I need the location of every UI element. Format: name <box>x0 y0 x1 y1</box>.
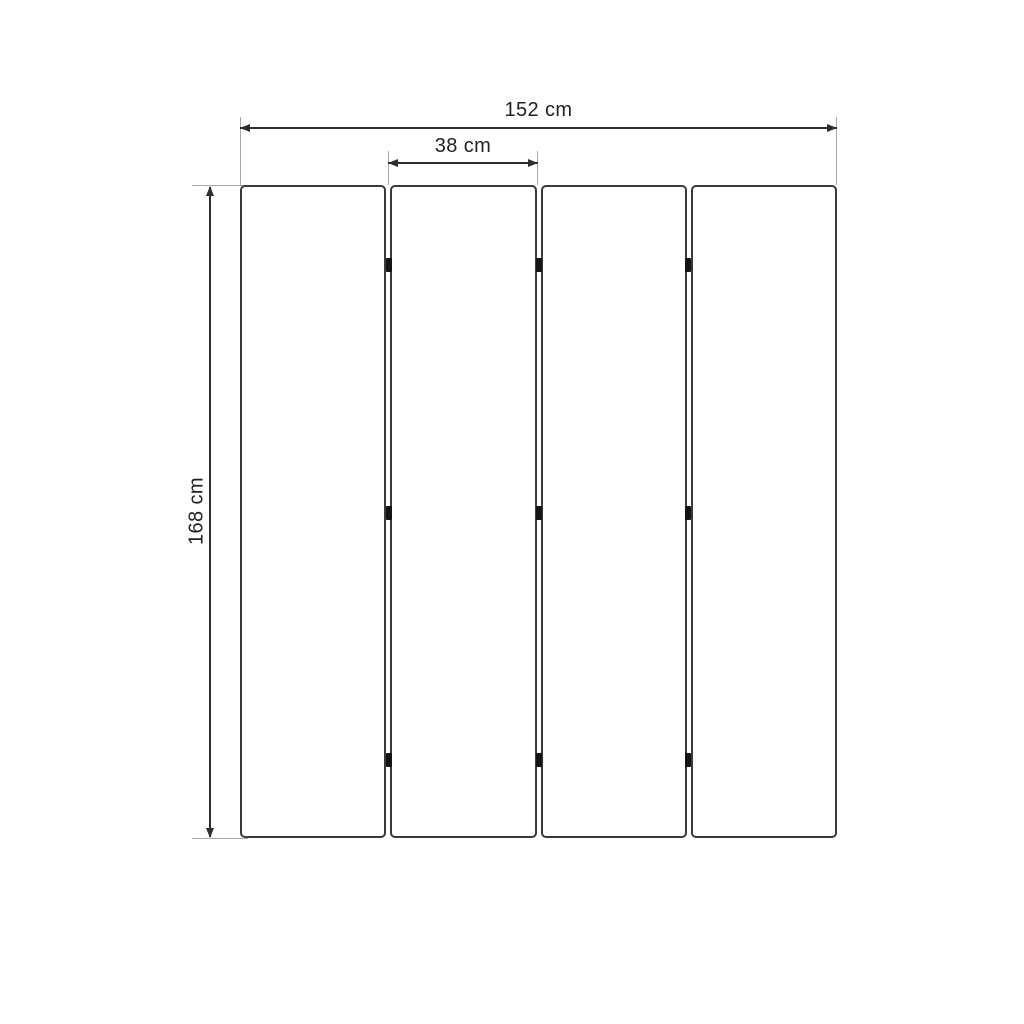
arrowhead-right-icon <box>827 124 837 132</box>
arrowhead-left-icon <box>240 124 250 132</box>
arrowhead-left-icon <box>388 159 398 167</box>
dimension-line-width-total <box>240 127 837 129</box>
hinge-mark <box>386 506 392 520</box>
panels-area <box>240 185 837 838</box>
panel-2 <box>390 185 536 838</box>
hinge-mark <box>685 258 691 272</box>
arrowhead-right-icon <box>528 159 538 167</box>
arrowhead-down-icon <box>206 828 214 838</box>
hinge-mark <box>685 506 691 520</box>
hinge-mark <box>536 753 542 767</box>
extension-line-panel-left <box>388 151 389 185</box>
extension-line-height-bottom <box>192 838 248 839</box>
dimension-label-panel-width: 38 cm <box>388 135 538 158</box>
arrowhead-up-icon <box>206 186 214 196</box>
dimension-line-height <box>209 187 211 837</box>
dimension-line-panel-width <box>388 162 538 164</box>
hinge-mark <box>386 753 392 767</box>
panel-4 <box>691 185 837 838</box>
panel-3 <box>541 185 687 838</box>
hinge-mark <box>536 506 542 520</box>
extension-line-panel-right <box>537 151 538 185</box>
hinge-mark <box>386 258 392 272</box>
dimension-label-width-total: 152 cm <box>240 99 837 122</box>
dimension-label-height: 168 cm <box>186 477 209 545</box>
hinge-mark <box>536 258 542 272</box>
hinge-mark <box>685 753 691 767</box>
dimension-drawing-canvas: 152 cm 38 cm 168 cm <box>0 0 1024 1024</box>
panel-1 <box>240 185 386 838</box>
